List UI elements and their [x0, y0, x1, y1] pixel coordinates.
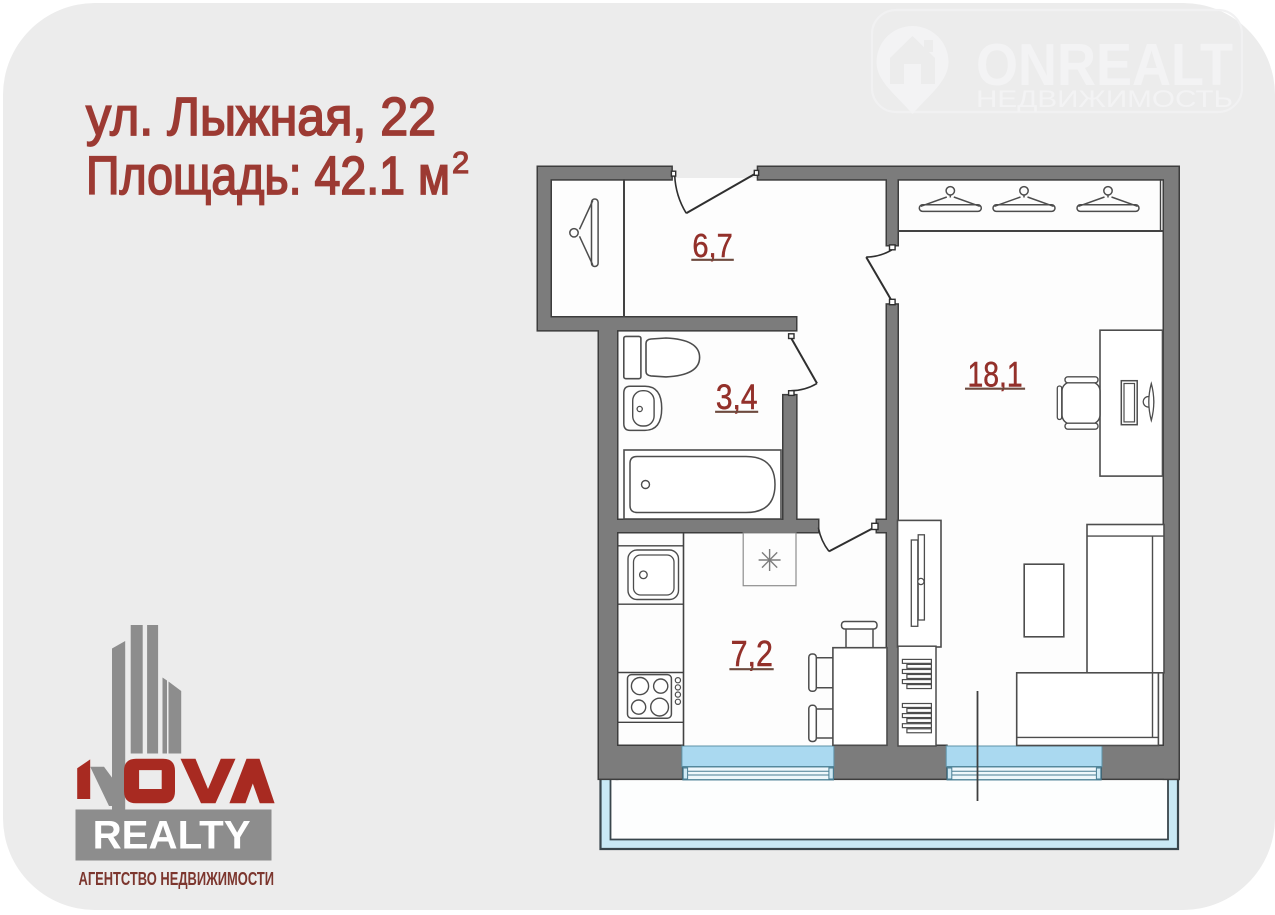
- svg-text:НЕДВИЖИМОСТЬ: НЕДВИЖИМОСТЬ: [976, 86, 1233, 113]
- svg-text:2: 2: [452, 145, 469, 180]
- svg-text:REALTY: REALTY: [93, 814, 251, 858]
- svg-text:АГЕНТСТВО НЕДВИЖИМОСТИ: АГЕНТСТВО НЕДВИЖИМОСТИ: [79, 869, 275, 889]
- svg-text:7,2: 7,2: [731, 633, 773, 674]
- svg-text:Площадь: 42.1 м: Площадь: 42.1 м: [86, 146, 450, 206]
- svg-text:ул. Лыжная, 22: ул. Лыжная, 22: [86, 87, 436, 147]
